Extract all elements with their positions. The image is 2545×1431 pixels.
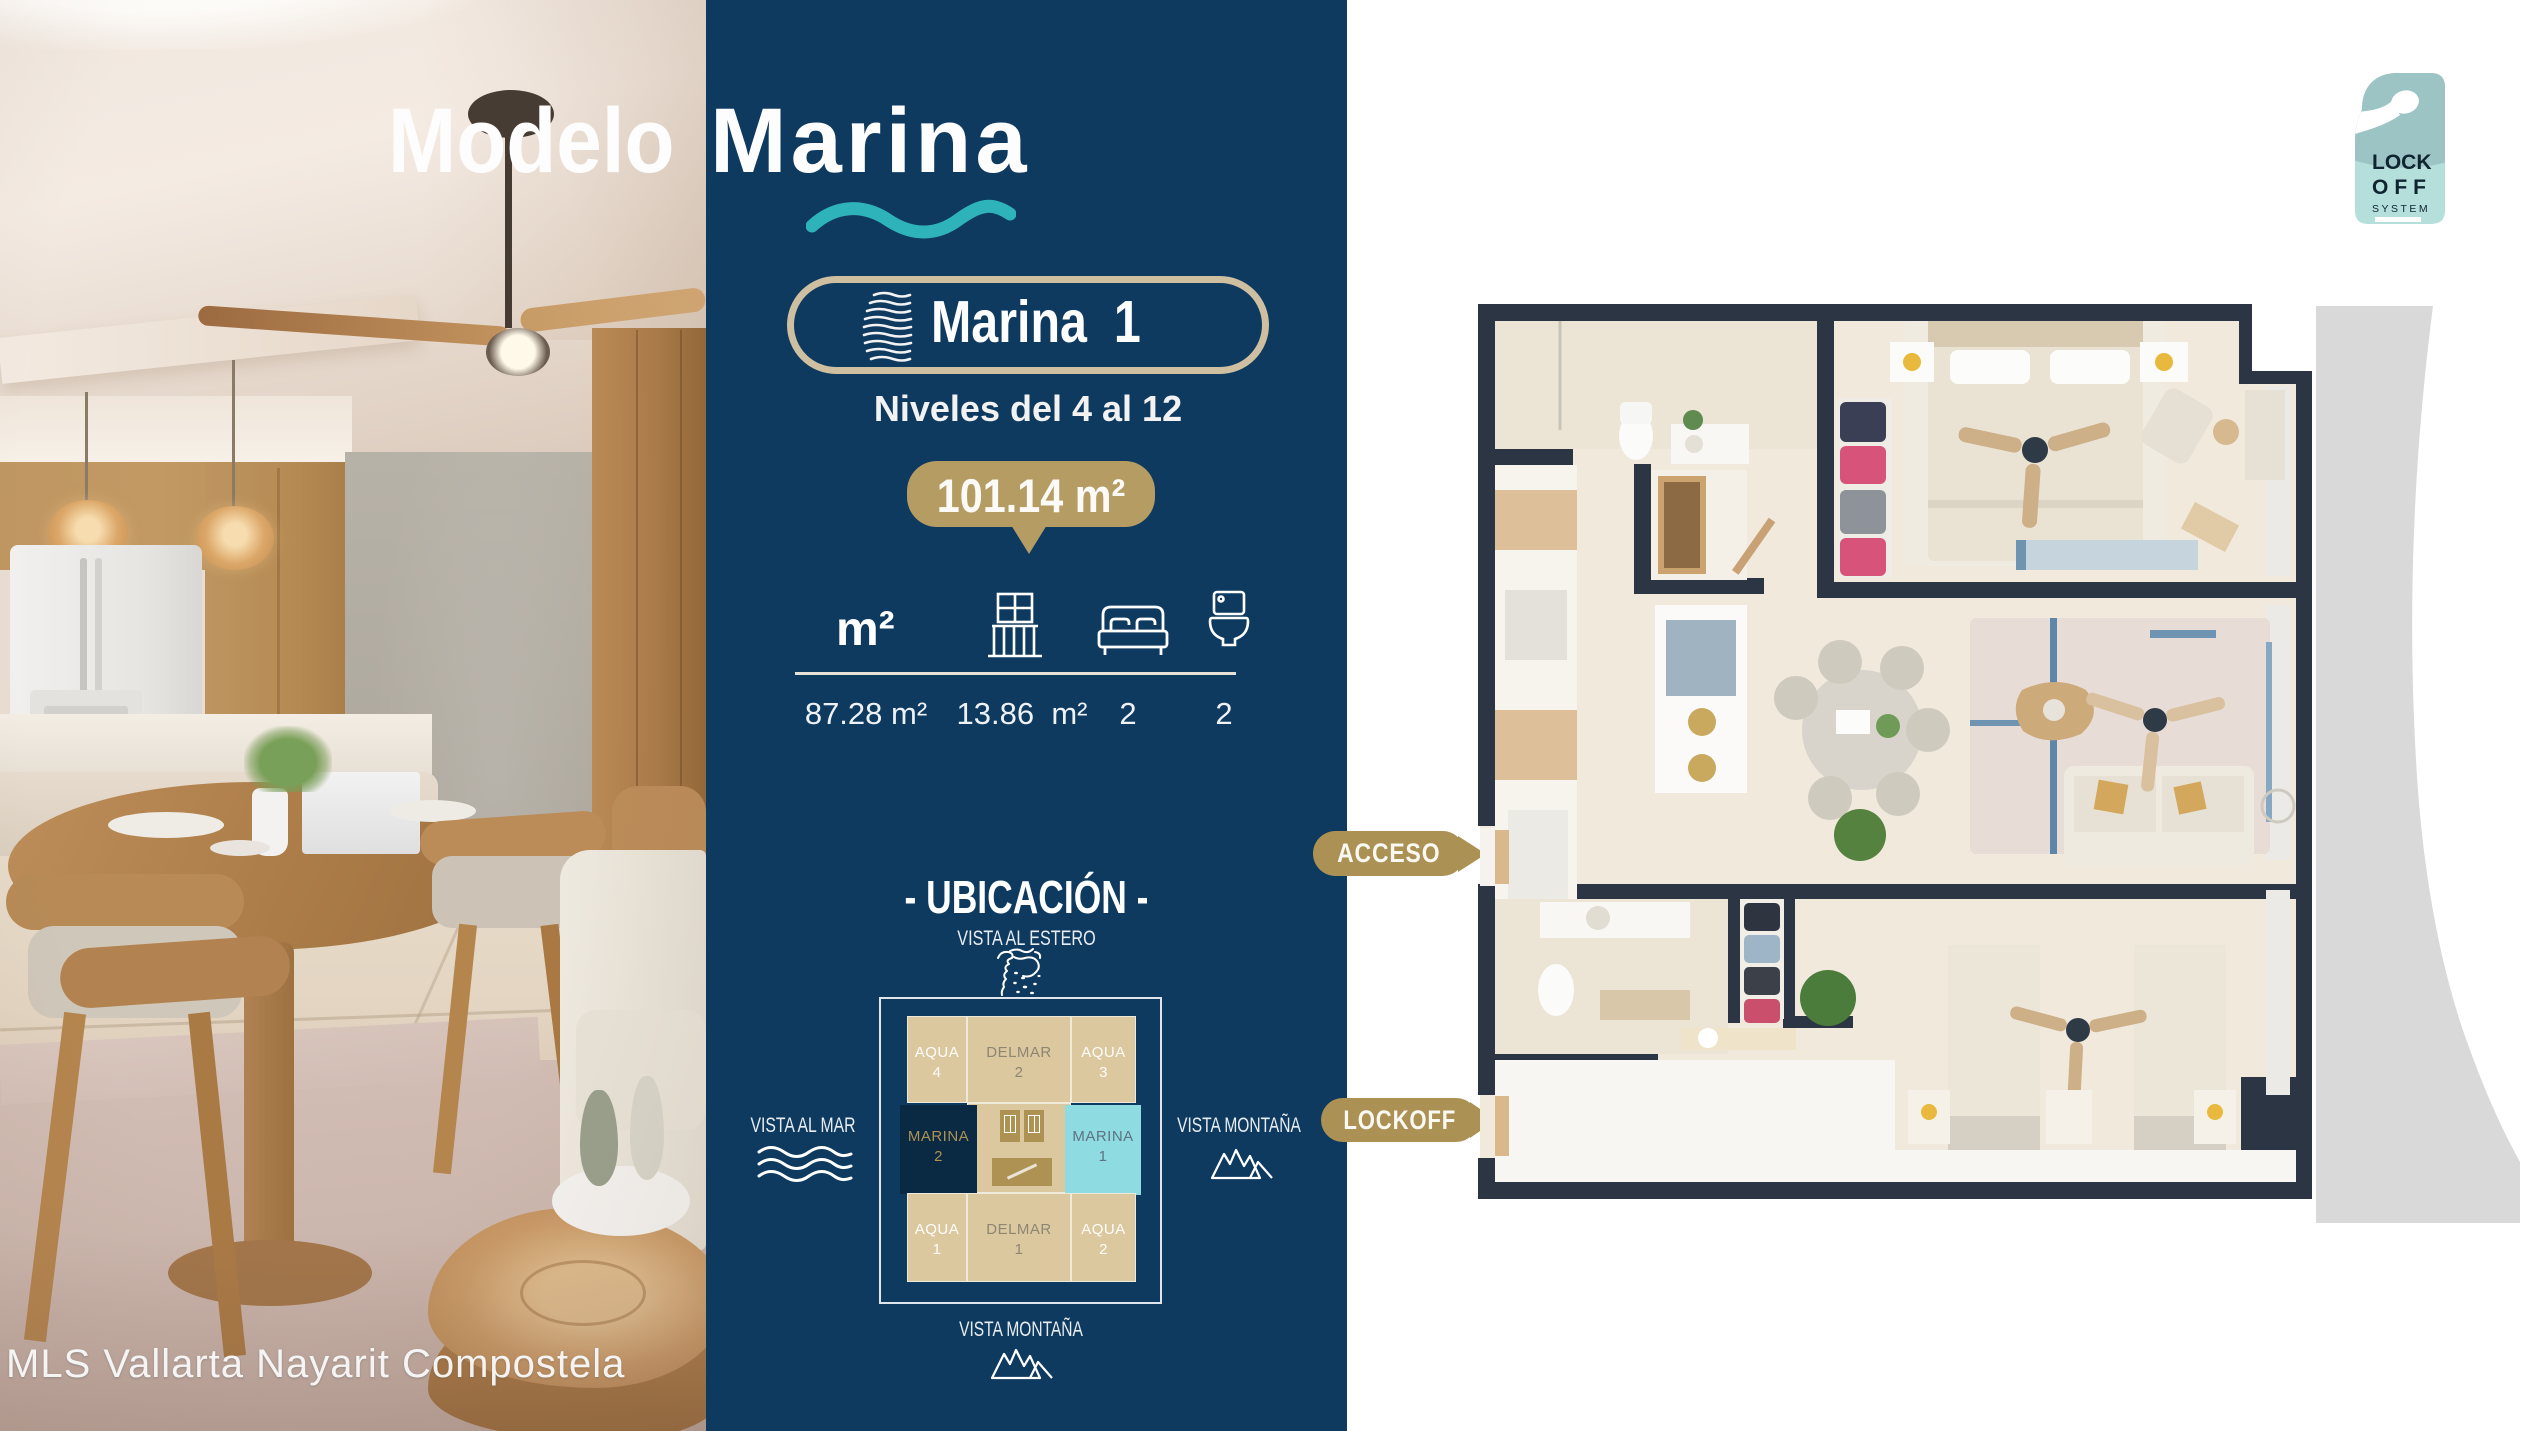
svg-text:SYSTEM: SYSTEM [2372,203,2430,215]
svg-text:LOCK: LOCK [2372,151,2432,174]
svg-text:OFF: OFF [2372,176,2432,199]
